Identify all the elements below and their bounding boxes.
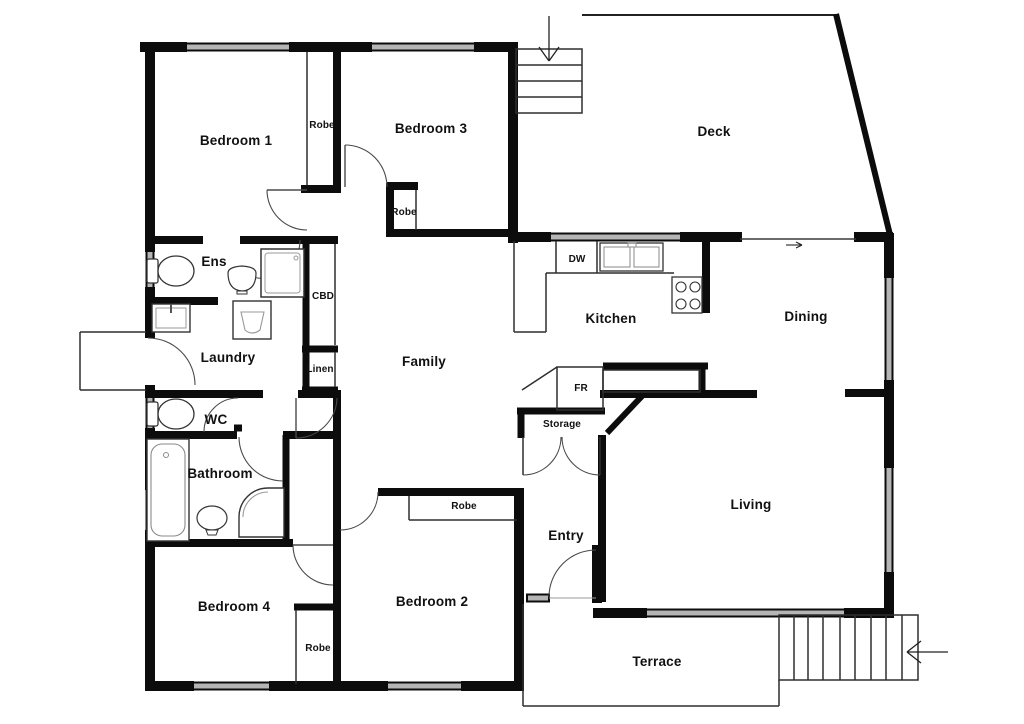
- toilet-icon: [147, 399, 194, 429]
- cooktop-icon: [672, 277, 702, 313]
- label-robe1: Robe: [309, 120, 335, 131]
- terrace-stairs: [779, 615, 918, 680]
- label-robe2: Robe: [451, 501, 477, 512]
- shower-icon: [261, 249, 304, 297]
- label-robe4: Robe: [305, 643, 331, 654]
- label-bedroom1: Bedroom 1: [200, 133, 273, 148]
- label-bedroom4: Bedroom 4: [198, 599, 271, 614]
- label-bedroom2: Bedroom 2: [396, 594, 468, 609]
- label-bathroom: Bathroom: [187, 466, 252, 481]
- label-fr: FR: [574, 383, 588, 394]
- laundry-sink-icon: [152, 304, 190, 332]
- label-bedroom3: Bedroom 3: [395, 121, 468, 136]
- floor-plan-page: Bedroom 1 Robe Bedroom 3 Robe Deck Ens C…: [0, 0, 1024, 724]
- label-kitchen: Kitchen: [586, 311, 637, 326]
- corner-shower-icon: [239, 488, 284, 537]
- double-sink-icon: [600, 243, 663, 271]
- label-cbd: CBD: [312, 291, 334, 302]
- label-deck: Deck: [697, 124, 730, 139]
- label-family: Family: [402, 354, 446, 369]
- basin-icon: [228, 266, 256, 294]
- label-terrace: Terrace: [632, 654, 681, 669]
- basin-icon: [197, 506, 227, 535]
- label-wc: WC: [205, 412, 228, 427]
- deck-outline: [582, 14, 891, 239]
- left-arrow-terrace-stairs: [907, 641, 948, 663]
- right-arrow-sliding-door: [786, 242, 802, 248]
- label-dining: Dining: [784, 309, 827, 324]
- label-robe3: Robe: [391, 207, 417, 218]
- label-living: Living: [731, 497, 772, 512]
- label-dw: DW: [569, 254, 586, 265]
- toilet-icon: [147, 256, 194, 286]
- floor-plan-drawing: Bedroom 1 Robe Bedroom 3 Robe Deck Ens C…: [0, 0, 1024, 724]
- label-entry: Entry: [548, 528, 584, 543]
- label-linen: Linen: [306, 364, 333, 375]
- sliding-door-dining: [740, 239, 856, 248]
- label-ens: Ens: [201, 254, 226, 269]
- label-laundry: Laundry: [201, 350, 256, 365]
- label-storage: Storage: [543, 419, 581, 430]
- laundry-trough-icon: [233, 301, 271, 339]
- bathtub-icon: [147, 439, 189, 541]
- down-arrow-deck-stairs: [539, 16, 559, 61]
